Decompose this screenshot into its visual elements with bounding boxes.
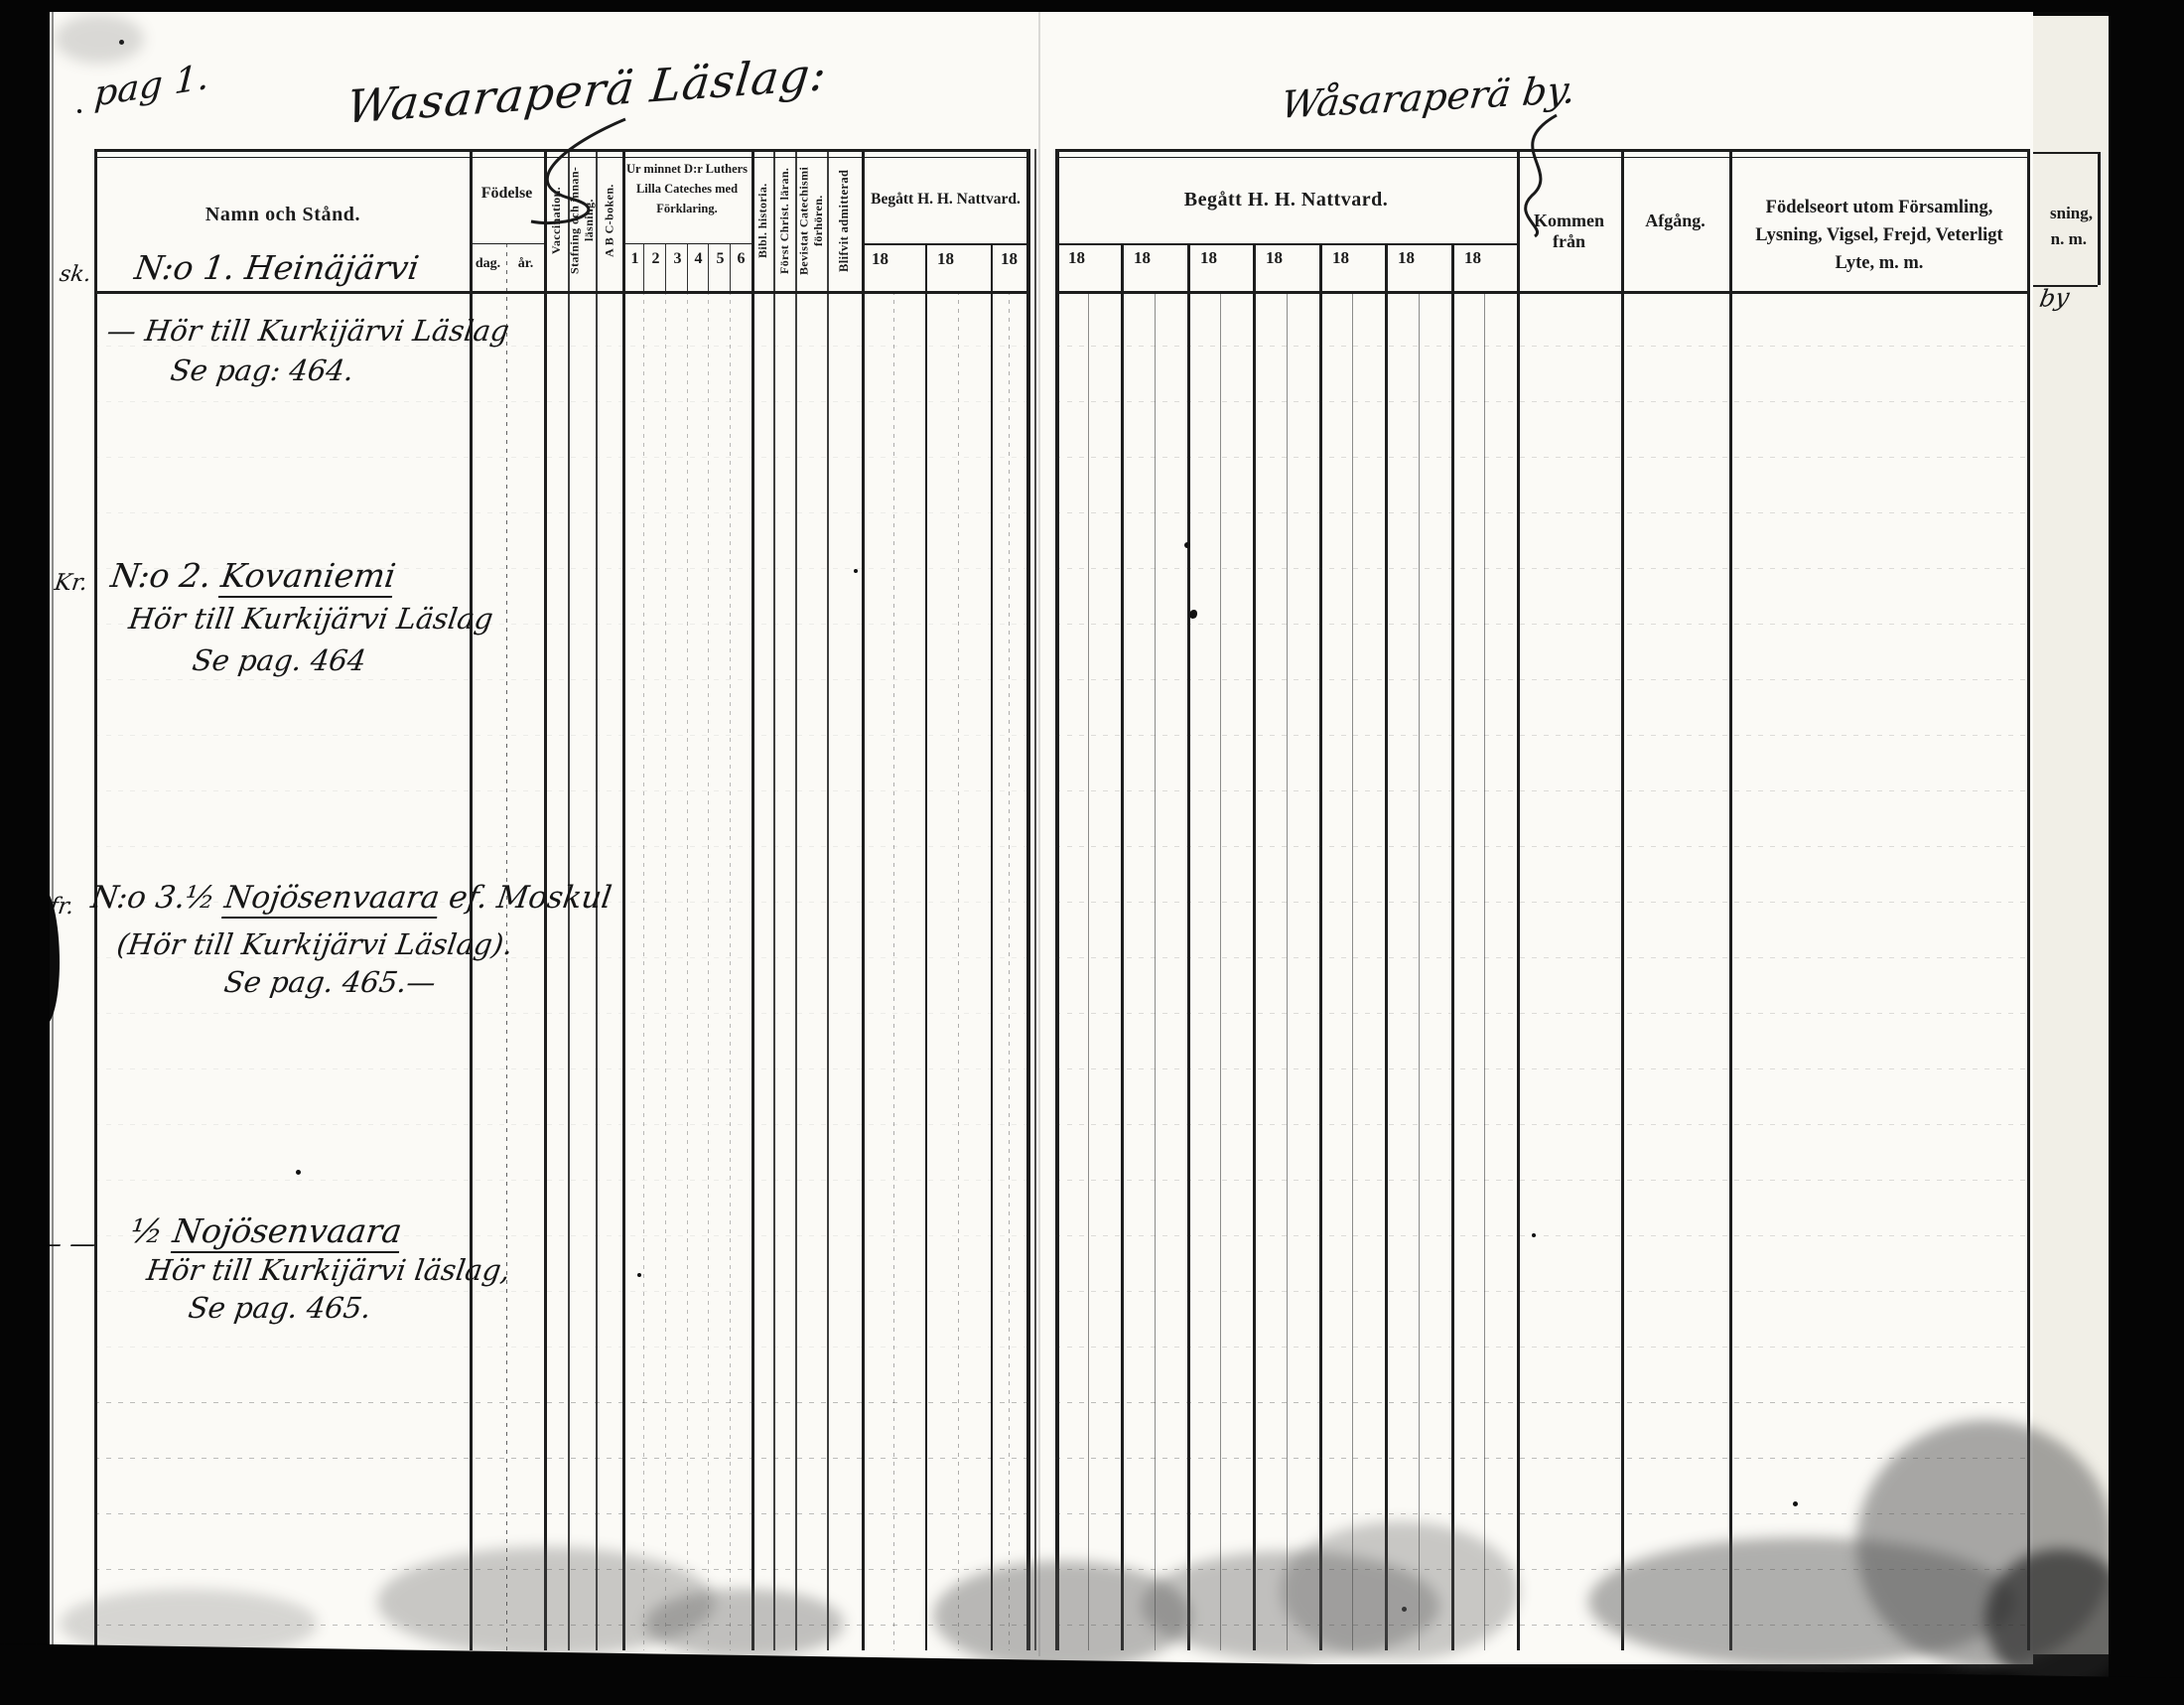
table-rule bbox=[94, 846, 1029, 847]
table-rule bbox=[893, 291, 894, 1650]
table-rule bbox=[1055, 1180, 2027, 1181]
entry-name-line: N:o 3.½ Nojösenvaara ef. Moskul bbox=[88, 880, 614, 916]
table-rule bbox=[1220, 291, 1221, 1650]
ink-speck bbox=[1532, 1233, 1536, 1237]
table-rule bbox=[862, 243, 1029, 245]
table-rule bbox=[1287, 291, 1288, 1650]
table-rule bbox=[94, 457, 1029, 458]
column-header-communion-right: Begått H. H. Nattvard. bbox=[1055, 189, 1517, 212]
entry-name-line: N:o 1. Heinäjärvi bbox=[132, 248, 421, 287]
table-rule bbox=[665, 243, 666, 291]
table-rule bbox=[643, 243, 644, 291]
ink-speck bbox=[1184, 542, 1190, 548]
ink-speck bbox=[77, 109, 81, 113]
table-rule bbox=[2027, 149, 2030, 1650]
entry-note: (Hör till Kurkijärvi Läslag). bbox=[115, 927, 515, 961]
entry-page-ref: Se pag: 464. bbox=[169, 354, 356, 387]
table-rule bbox=[1484, 291, 1485, 1650]
table-rule bbox=[2033, 152, 2098, 154]
column-header-birth-year: år. bbox=[507, 256, 544, 272]
table-rule bbox=[687, 291, 688, 1650]
table-rule bbox=[1055, 568, 2027, 569]
scan-border-top bbox=[0, 0, 2184, 12]
table-rule bbox=[470, 243, 544, 244]
table-rule bbox=[1055, 1235, 2027, 1236]
scan-smudge bbox=[645, 1589, 844, 1658]
column-header-catechism-meeting: Bevistat Catechismi förhören. bbox=[795, 152, 827, 289]
table-rule bbox=[1055, 902, 2027, 903]
table-rule bbox=[1319, 243, 1322, 1650]
communion-year-right-1: 18 bbox=[1068, 248, 1085, 268]
table-rule bbox=[1055, 457, 2027, 458]
table-rule bbox=[1055, 735, 2027, 736]
entry-note: Hör till Kurkijärvi läslag, bbox=[145, 1253, 513, 1287]
table-rule bbox=[1055, 679, 2027, 680]
scan-border-left bbox=[0, 0, 50, 1705]
table-rule bbox=[1055, 790, 2027, 791]
next-page-header-fragment-2: n. m. bbox=[2037, 229, 2087, 249]
column-header-bible-history: Bibl. historia. bbox=[751, 152, 773, 289]
table-rule bbox=[1253, 243, 1256, 1650]
table-rule bbox=[1055, 1013, 2027, 1014]
entry-note: — Hör till Kurkijärvi Läslag bbox=[105, 314, 512, 348]
entry-number: N:o 1. bbox=[132, 248, 237, 287]
table-rule bbox=[708, 291, 709, 1650]
scanned-document: Namn och Stånd. Födelse dag. år. Vaccina… bbox=[0, 0, 2184, 1705]
scan-smudge bbox=[1281, 1521, 1519, 1660]
entry-margin-mark: sk. bbox=[58, 262, 92, 287]
table-rule bbox=[1055, 401, 2027, 402]
table-rule bbox=[730, 243, 731, 291]
column-header-name: Namn och Stånd. bbox=[99, 204, 467, 226]
table-rule bbox=[708, 243, 709, 291]
table-rule bbox=[687, 243, 688, 291]
table-rule bbox=[1121, 243, 1124, 1650]
catechism-subcol-4: 4 bbox=[690, 250, 707, 268]
table-rule bbox=[94, 1180, 1029, 1181]
table-rule bbox=[622, 149, 625, 1650]
catechism-subcol-1: 1 bbox=[626, 250, 643, 268]
table-rule bbox=[94, 1068, 1029, 1069]
table-rule bbox=[1517, 149, 1520, 1650]
table-rule bbox=[2098, 152, 2101, 285]
table-rule bbox=[1009, 291, 1010, 1650]
communion-year-right-7: 18 bbox=[1464, 248, 1481, 268]
column-header-communion-left: Begått H. H. Nattvard. bbox=[862, 191, 1029, 209]
table-rule bbox=[94, 1124, 1029, 1125]
table-rule bbox=[94, 790, 1029, 791]
entry-name-suffix: ef. Moskul bbox=[447, 880, 614, 916]
table-rule bbox=[1055, 512, 2027, 513]
entry-number: ½ bbox=[128, 1211, 165, 1250]
entry-page-ref: Se pag. 464 bbox=[191, 643, 368, 677]
column-header-birth-day: dag. bbox=[470, 256, 506, 272]
entry-number: N:o 3.½ bbox=[88, 880, 217, 916]
table-rule bbox=[862, 149, 865, 1650]
table-rule bbox=[1621, 149, 1624, 1650]
entry-page-ref: Se pag. 465. bbox=[187, 1291, 373, 1325]
entry-margin-mark: Kr. bbox=[53, 570, 89, 596]
table-rule bbox=[1055, 1291, 2027, 1292]
table-rule bbox=[1055, 1124, 2027, 1125]
pen-flourish-right bbox=[1487, 111, 1576, 240]
communion-year-right-6: 18 bbox=[1398, 248, 1415, 268]
table-rule bbox=[94, 1347, 1029, 1348]
table-rule bbox=[1055, 1458, 2027, 1459]
table-rule bbox=[94, 291, 1029, 294]
table-rule bbox=[1055, 346, 2027, 347]
catechism-subcol-2: 2 bbox=[647, 250, 664, 268]
table-rule bbox=[1419, 291, 1420, 1650]
scan-border-right bbox=[2109, 0, 2184, 1705]
communion-year-right-3: 18 bbox=[1200, 248, 1217, 268]
table-rule bbox=[1034, 149, 1036, 1650]
table-rule bbox=[795, 149, 797, 1650]
table-rule bbox=[94, 512, 1029, 513]
table-rule bbox=[94, 679, 1029, 680]
table-rule bbox=[1055, 1347, 2027, 1348]
table-rule bbox=[643, 291, 644, 1650]
communion-year-right-2: 18 bbox=[1134, 248, 1151, 268]
scan-smudge bbox=[55, 14, 144, 64]
communion-year-left-2: 18 bbox=[937, 249, 954, 269]
entry-number: N:o 2. bbox=[108, 556, 213, 595]
table-rule bbox=[94, 1513, 1029, 1514]
communion-year-left-1: 18 bbox=[872, 249, 888, 269]
ink-speck bbox=[296, 1170, 301, 1175]
table-rule bbox=[827, 149, 829, 1650]
table-rule bbox=[958, 291, 959, 1650]
entry-name: Heinäjärvi bbox=[242, 248, 421, 287]
communion-year-right-4: 18 bbox=[1266, 248, 1283, 268]
column-header-christian-doctrine: Först Christ. läran. bbox=[773, 152, 795, 289]
table-rule bbox=[1088, 291, 1089, 1650]
table-rule bbox=[1055, 1068, 2027, 1069]
table-rule bbox=[1055, 149, 1059, 1650]
communion-year-left-3: 18 bbox=[1001, 249, 1018, 269]
table-rule bbox=[94, 1458, 1029, 1459]
table-rule bbox=[1055, 243, 1517, 245]
table-rule bbox=[1055, 846, 2027, 847]
entry-name: Nojösenvaara bbox=[170, 1211, 404, 1253]
table-rule bbox=[751, 149, 754, 1650]
next-page-handwriting-fragment: by bbox=[2037, 283, 2071, 313]
entry-name: Nojösenvaara bbox=[222, 880, 443, 919]
table-rule bbox=[1055, 1402, 2027, 1403]
catechism-subcol-3: 3 bbox=[669, 250, 686, 268]
column-header-departure: Afgång. bbox=[1621, 211, 1729, 231]
table-rule bbox=[1187, 243, 1190, 1650]
table-rule bbox=[1155, 291, 1156, 1650]
entry-name-line: N:o 2. Kovaniemi bbox=[108, 556, 398, 595]
next-page-header-fragment-1: sning, bbox=[2037, 204, 2093, 223]
table-rule bbox=[773, 149, 775, 1650]
table-rule bbox=[1026, 149, 1030, 1650]
table-rule bbox=[925, 243, 927, 1650]
column-header-notes: Födelseort utom Församling, Lysning, Vig… bbox=[1739, 195, 2019, 277]
column-header-admitted: Blifvit admitterad bbox=[827, 152, 862, 289]
entry-name: Kovaniemi bbox=[218, 556, 398, 598]
ink-speck bbox=[854, 569, 858, 573]
pen-flourish-left bbox=[477, 114, 675, 233]
table-rule bbox=[94, 1402, 1029, 1403]
table-rule bbox=[94, 401, 1029, 402]
catechism-subcol-6: 6 bbox=[733, 250, 750, 268]
entry-note: Hör till Kurkijärvi Läslag bbox=[127, 602, 495, 636]
table-rule bbox=[1055, 291, 2027, 294]
table-rule bbox=[665, 291, 666, 1650]
table-rule bbox=[1055, 624, 2027, 625]
table-rule bbox=[622, 243, 751, 244]
table-rule bbox=[1385, 243, 1388, 1650]
ink-speck bbox=[637, 1273, 641, 1277]
ink-speck bbox=[1793, 1501, 1798, 1506]
table-rule bbox=[1055, 957, 2027, 958]
table-rule bbox=[991, 243, 993, 1650]
table-rule bbox=[94, 735, 1029, 736]
table-rule bbox=[94, 1013, 1029, 1014]
entry-page-ref: Se pag. 465.— bbox=[222, 965, 438, 999]
table-rule bbox=[1451, 243, 1454, 1650]
table-rule bbox=[1729, 149, 1732, 1650]
communion-year-right-5: 18 bbox=[1332, 248, 1349, 268]
table-rule bbox=[1352, 291, 1353, 1650]
catechism-subcol-5: 5 bbox=[712, 250, 729, 268]
table-rule bbox=[730, 291, 731, 1650]
entry-name-line: ½ Nojösenvaara bbox=[128, 1211, 404, 1250]
